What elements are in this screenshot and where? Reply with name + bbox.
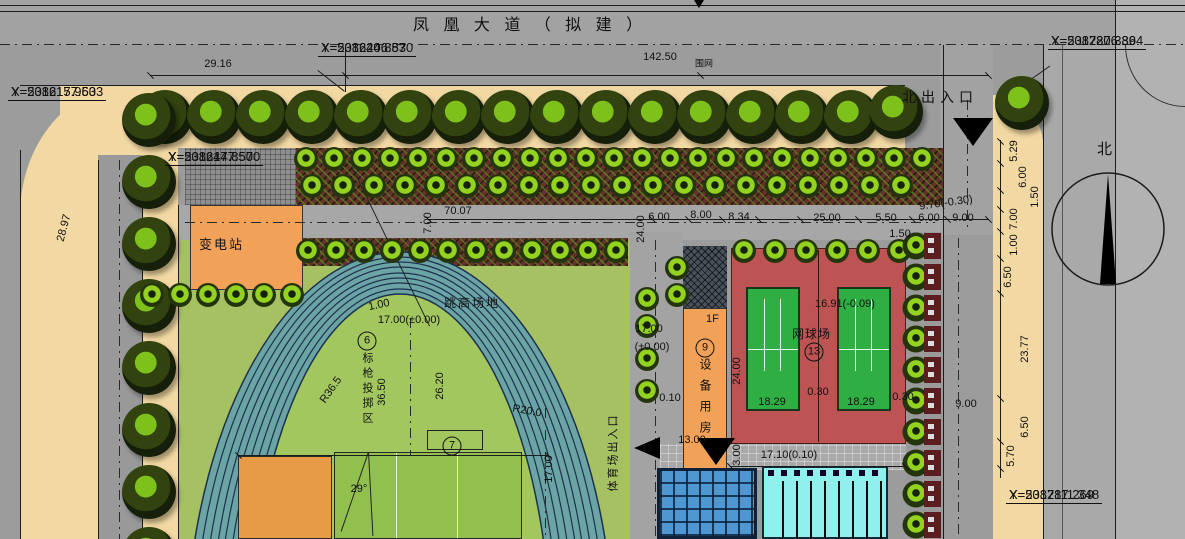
tree-icon	[122, 93, 176, 147]
dimension-label: 70.07	[444, 205, 472, 217]
shrub-icon	[686, 147, 710, 171]
keynote-circle: 6	[358, 332, 377, 351]
dimension-label: 1.50	[1029, 186, 1041, 207]
pool-start-blocks	[768, 470, 882, 476]
bleacher-stand	[924, 295, 941, 321]
shrub-icon	[672, 174, 696, 198]
shrub-icon	[280, 283, 304, 307]
shrub-icon	[408, 239, 432, 263]
entrance-marker-icon	[634, 437, 660, 459]
dim-line	[730, 466, 906, 467]
shrub-icon	[630, 147, 654, 171]
shrub-icon	[827, 174, 851, 198]
left-road-centerline	[119, 160, 120, 539]
dimension-label: 9.00	[952, 212, 973, 224]
shrub-icon	[796, 174, 820, 198]
dimension-label: 142.50	[643, 51, 677, 63]
shrub-icon	[324, 239, 348, 263]
dimension-label: 26.20	[434, 372, 446, 400]
dimension-label: 0.30	[807, 386, 828, 398]
tree-icon	[334, 90, 388, 144]
shrub-icon	[462, 147, 486, 171]
shrub-icon	[492, 239, 516, 263]
shrub-icon	[352, 239, 376, 263]
tree-icon	[122, 403, 176, 457]
curb-line	[943, 45, 944, 539]
dimension-label: (±0.00)	[635, 341, 670, 353]
dimension-label: 1.00	[1008, 234, 1020, 255]
curb-line	[20, 150, 21, 539]
tree-icon	[187, 90, 241, 144]
shrub-icon	[140, 283, 164, 307]
shrub-icon	[490, 147, 514, 171]
shrub-icon	[770, 147, 794, 171]
tree-icon	[530, 90, 584, 144]
shrub-icon	[196, 283, 220, 307]
shrub-icon	[331, 174, 355, 198]
bleacher-stand	[924, 388, 941, 414]
javelin-label: 标枪投掷区	[359, 352, 375, 462]
shrub-icon	[548, 174, 572, 198]
shrub-icon	[703, 174, 727, 198]
dim-line	[238, 455, 548, 456]
dimension-label: 6.50	[1002, 266, 1014, 287]
shrub-icon	[635, 287, 659, 311]
road-boundary	[0, 44, 1185, 45]
shrub-icon	[579, 174, 603, 198]
dimension-label: 17.10(0.10)	[761, 449, 817, 461]
tree-icon	[628, 90, 682, 144]
shrub-icon	[168, 283, 192, 307]
tree-icon	[122, 217, 176, 271]
tree-icon	[481, 90, 535, 144]
tennis-court-west	[746, 287, 800, 411]
shrub-icon	[576, 239, 600, 263]
east-road	[1043, 45, 1115, 539]
shrub-icon	[889, 174, 913, 198]
bleacher-stand	[924, 512, 941, 538]
dimension-label: 5.29	[1008, 140, 1020, 161]
shrub-icon	[742, 147, 766, 171]
dimension-label: 29°	[351, 483, 368, 495]
coord-y: Y=501787.269	[1006, 487, 1097, 502]
shrub-icon	[224, 283, 248, 307]
tree-icon	[285, 90, 339, 144]
shrub-icon	[826, 147, 850, 171]
high-jump-label: 跳高场地	[444, 294, 500, 311]
coord-y: Y=501644.850	[165, 149, 256, 164]
tree-icon	[726, 90, 780, 144]
dimension-label: 17.00	[635, 323, 663, 335]
shrub-icon	[910, 147, 934, 171]
bleacher-stand	[924, 326, 941, 352]
dim-line	[150, 75, 988, 76]
coord-y: Y=501644.883	[318, 40, 409, 55]
shrub-icon	[610, 174, 634, 198]
road-line	[0, 5, 1185, 6]
shrub-icon	[294, 147, 318, 171]
dim-arrow-icon	[694, 0, 704, 8]
compass-label: 北	[1097, 138, 1112, 159]
shrub-icon	[486, 174, 510, 198]
shrub-icon	[882, 147, 906, 171]
curb-line	[178, 205, 179, 539]
dimension-label: 0.10	[659, 392, 680, 404]
shrub-icon	[548, 239, 572, 263]
tree-icon	[122, 465, 176, 519]
site-plan: 凤 凰 大 道 （ 拟 建 ） 变电站 跳高场地 标枪投掷区 体育场出入口	[0, 0, 1185, 539]
shrub-icon	[393, 174, 417, 198]
dimension-label: 8.34	[728, 211, 749, 223]
shrub-icon	[635, 379, 659, 403]
tree-icon	[775, 90, 829, 144]
shrub-icon	[350, 147, 374, 171]
dimension-label: 18.29	[847, 396, 875, 408]
shrub-icon	[296, 239, 320, 263]
shrub-icon	[665, 256, 689, 280]
shrub-icon	[798, 147, 822, 171]
shrub-icon	[322, 147, 346, 171]
dimension-label: 6.00	[1017, 166, 1029, 187]
shrub-icon	[858, 174, 882, 198]
shrub-icon	[252, 283, 276, 307]
dimension-label: 6.50	[1019, 416, 1031, 437]
shrub-icon	[455, 174, 479, 198]
shrub-icon	[520, 239, 544, 263]
dim-line	[410, 318, 411, 455]
coord-y: Y=501787.386	[1048, 33, 1139, 48]
shrub-icon	[794, 239, 818, 263]
shrub-icon	[856, 239, 880, 263]
dimension-label: 0.30	[892, 391, 913, 403]
road-name: 凤 凰 大 道 （ 拟 建 ）	[413, 11, 647, 35]
shrub-icon	[854, 147, 878, 171]
plaza-hatch	[683, 246, 727, 308]
keynote-circle: 13	[805, 343, 824, 362]
equipment-floor-label: 1F	[706, 313, 719, 325]
shrub-icon	[732, 239, 756, 263]
shrub-icon	[380, 239, 404, 263]
bleacher-stand	[924, 419, 941, 445]
curb-line	[98, 160, 99, 539]
shrub-icon	[604, 239, 628, 263]
equipment-room-label: 设备用房	[697, 358, 714, 473]
stadium-entrance-label: 体育场出入口	[605, 377, 621, 492]
dimension-label: 23.77	[1019, 335, 1031, 363]
shrub-icon	[714, 147, 738, 171]
shrub-icon	[300, 174, 324, 198]
shrub-icon	[602, 147, 626, 171]
dimension-label: 25.00	[813, 212, 841, 224]
shrub-icon	[424, 174, 448, 198]
dimension-label: 24.00	[731, 357, 743, 385]
shrub-icon	[765, 174, 789, 198]
tree-icon	[579, 90, 633, 144]
dimension-label: 17.00	[543, 455, 555, 483]
dimension-label: 7.00	[1008, 208, 1020, 229]
dimension-label: 1.50	[889, 228, 910, 240]
bleacher-stand	[924, 450, 941, 476]
lane-line	[1062, 45, 1063, 539]
shrub-icon	[378, 147, 402, 171]
dimension-label: 5.70	[1005, 445, 1017, 466]
dimension-label: 6.00	[648, 211, 669, 223]
shrub-icon	[546, 147, 570, 171]
dimension-label: 3.00	[731, 444, 743, 465]
volleyball-court	[238, 456, 332, 539]
dimension-label: 5.50	[875, 212, 896, 224]
shrub-icon	[362, 174, 386, 198]
dimension-label: 17.00(±0.00)	[378, 314, 440, 326]
shrub-icon	[517, 174, 541, 198]
dimension-label: 8.00	[690, 209, 711, 221]
keynote-circle: 7	[443, 437, 462, 456]
dimension-label: 18.29	[758, 396, 786, 408]
bleacher-stand	[924, 233, 941, 259]
tennis-label: 网球场	[792, 325, 831, 342]
keynote-circle: 9	[696, 339, 715, 358]
bleacher-stand	[924, 357, 941, 383]
dimension-label: 24.00	[635, 215, 647, 243]
bleacher-stand	[924, 481, 941, 507]
north-entrance-marker-icon	[953, 118, 993, 146]
shrub-icon	[574, 147, 598, 171]
shrub-icon	[658, 147, 682, 171]
dimension-label: 7.00	[422, 212, 434, 233]
dimension-label: 36.50	[376, 378, 388, 406]
sidewalk-edge	[20, 85, 905, 86]
shrub-icon	[825, 239, 849, 263]
tree-icon	[383, 90, 437, 144]
bleacher-stand	[924, 264, 941, 290]
shrub-icon	[641, 174, 665, 198]
dimension-label: 6.00	[918, 212, 939, 224]
east-path-centerline	[958, 238, 959, 539]
dimension-label: 16.91(-0.09)	[815, 298, 875, 310]
dimension-label: 29.16	[204, 58, 232, 70]
gym-roof	[657, 468, 757, 539]
tree-icon	[677, 90, 731, 144]
shrub-icon	[436, 239, 460, 263]
shrub-icon	[464, 239, 488, 263]
coord-y: Y=501615.953	[8, 84, 99, 99]
shrub-icon	[406, 147, 430, 171]
shrub-icon	[665, 283, 689, 307]
tree-icon	[995, 76, 1049, 130]
tree-icon	[236, 90, 290, 144]
shrub-icon	[734, 174, 758, 198]
substation-label: 变电站	[199, 234, 244, 253]
tree-icon	[122, 341, 176, 395]
north-entrance-label: 北出入口	[902, 87, 978, 107]
shrub-icon	[434, 147, 458, 171]
dimension-label: 9.00	[955, 398, 976, 410]
pool-lanes	[770, 481, 882, 539]
shrub-icon	[518, 147, 542, 171]
north-compass-icon	[1050, 165, 1166, 291]
tree-icon	[432, 90, 486, 144]
shrub-icon	[763, 239, 787, 263]
dimension-label: 围网	[695, 57, 713, 70]
